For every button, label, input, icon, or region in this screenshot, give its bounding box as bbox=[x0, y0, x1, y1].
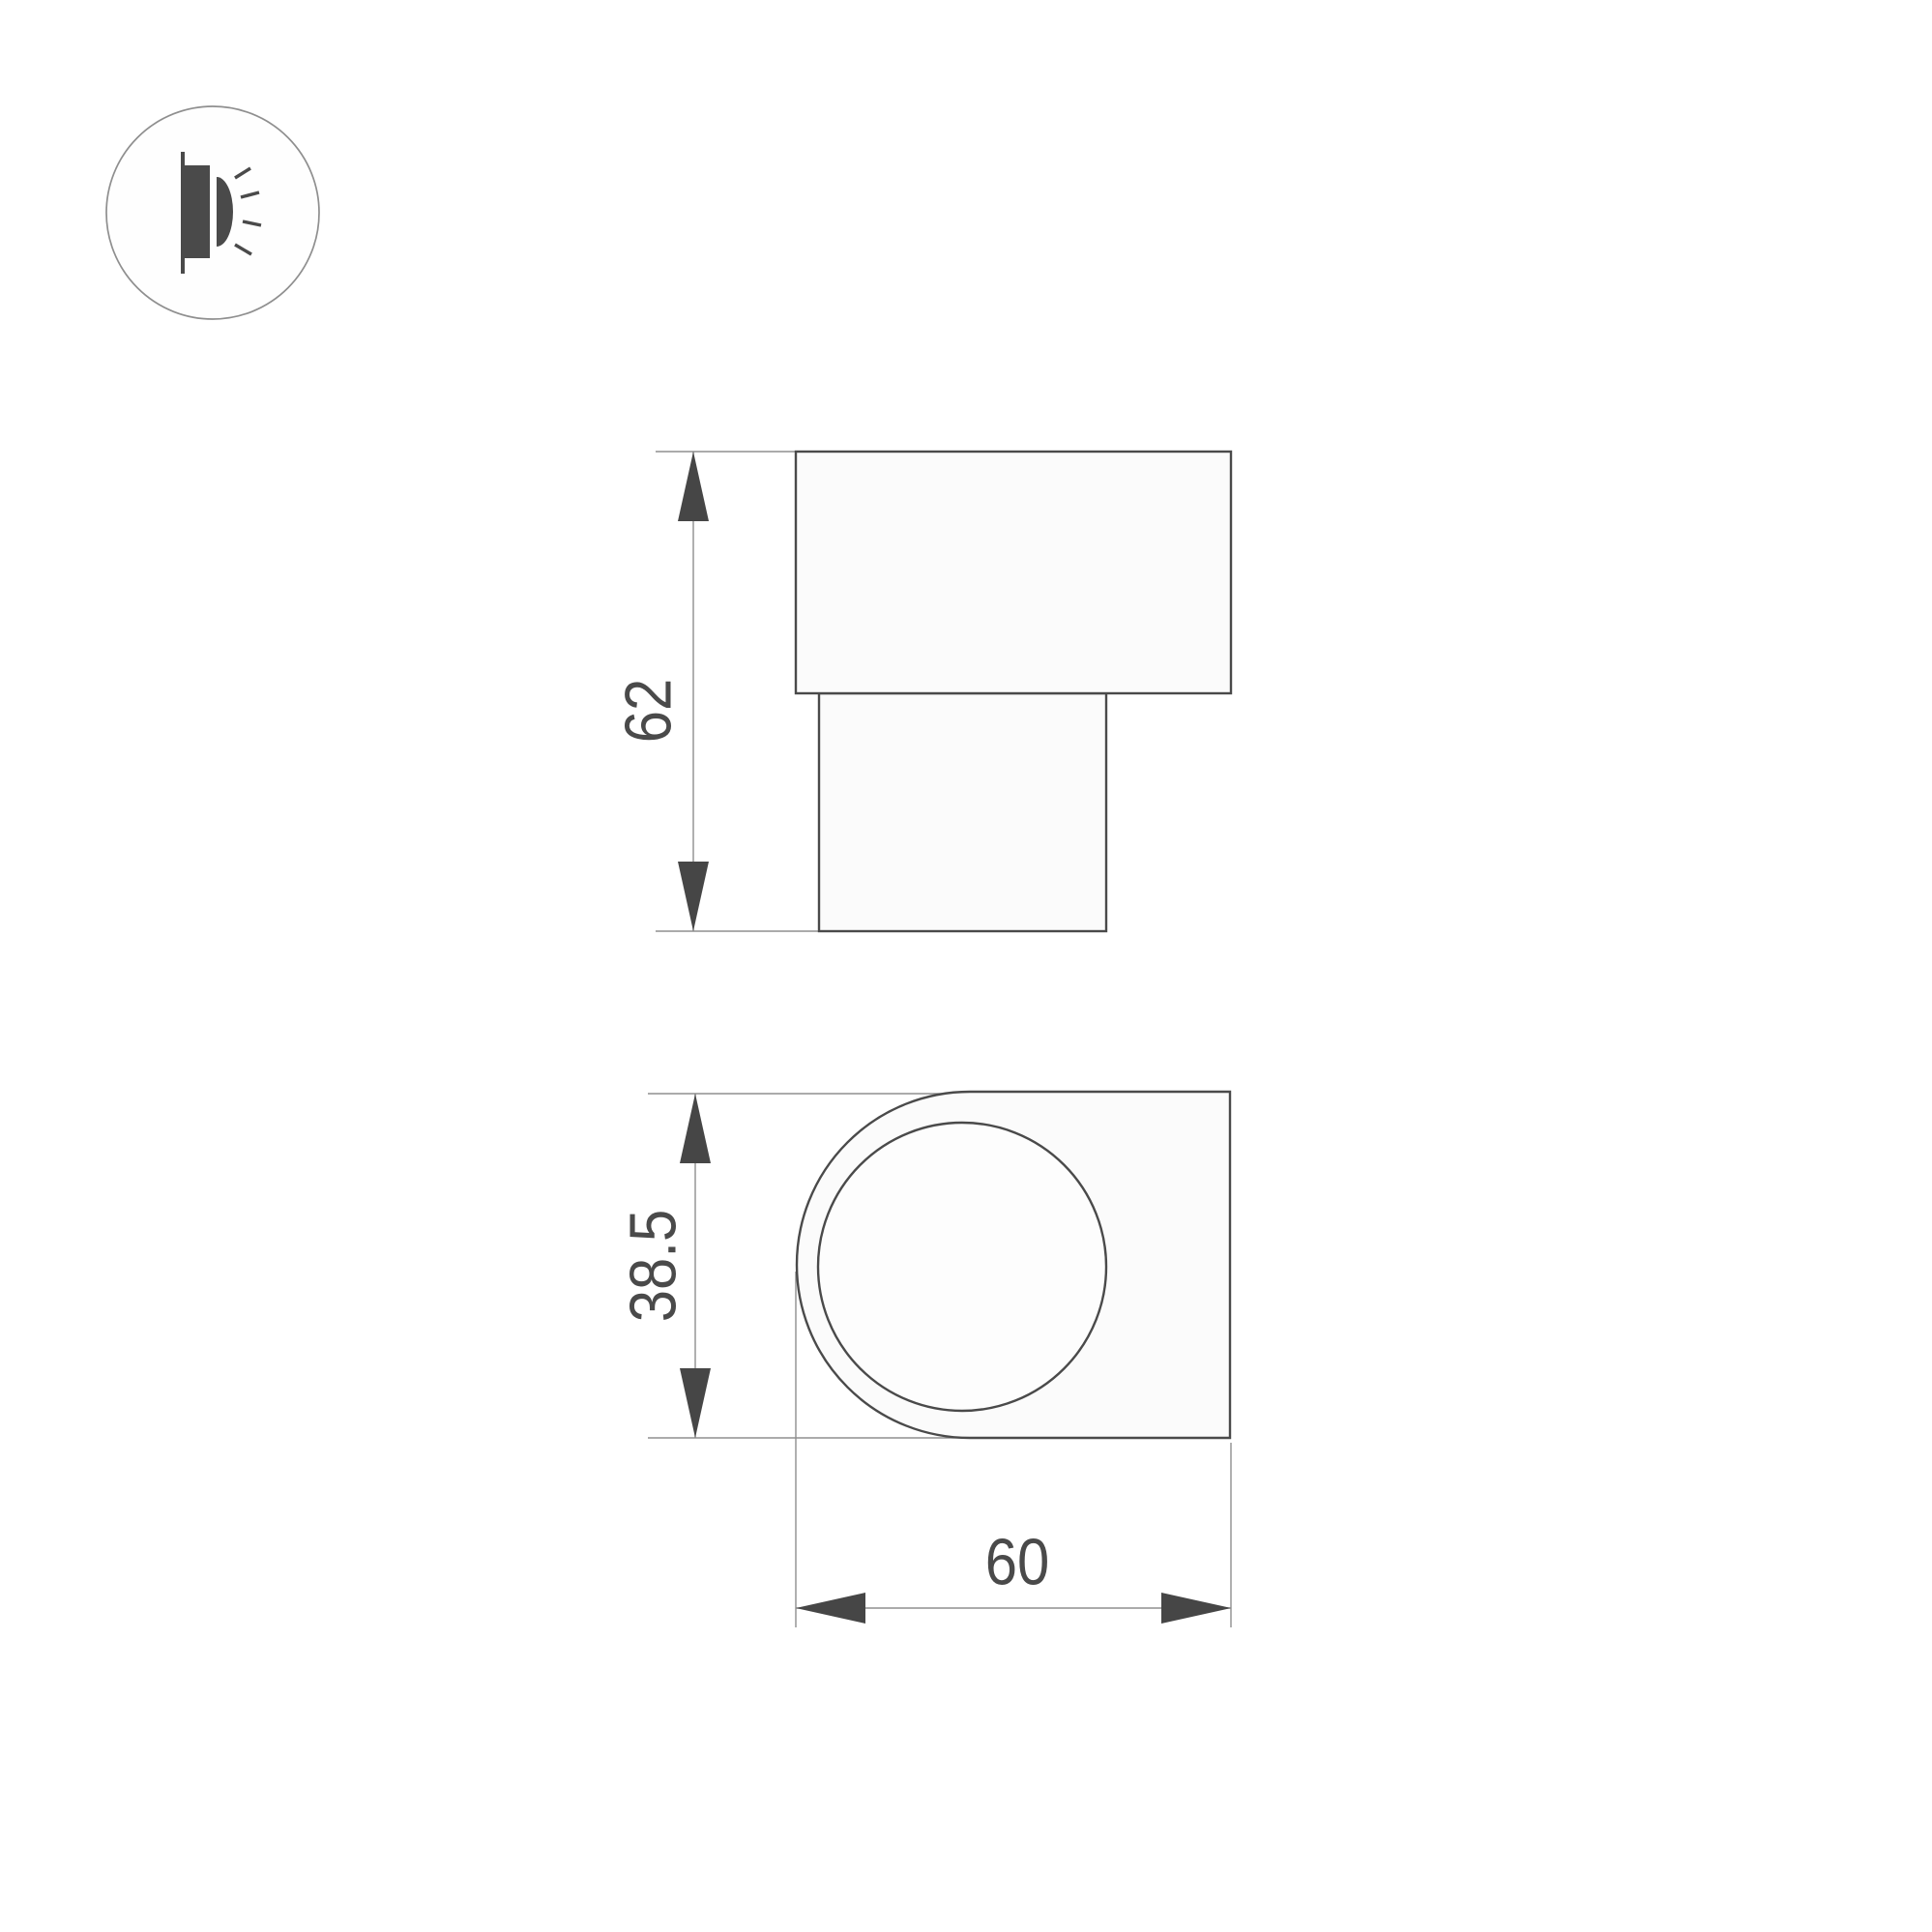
side-view-head bbox=[796, 452, 1231, 693]
front-view: 38.5 60 bbox=[616, 1092, 1231, 1627]
dim-value-62: 62 bbox=[611, 679, 685, 744]
wall-light-icon bbox=[106, 106, 319, 319]
arrow-left-icon bbox=[796, 1593, 865, 1624]
side-view: 62 bbox=[611, 452, 1231, 931]
icon-wall-line bbox=[181, 152, 185, 274]
arrow-down-icon bbox=[680, 1368, 711, 1438]
arrow-up-icon bbox=[678, 452, 709, 521]
technical-drawing: 62 38.5 60 bbox=[0, 0, 1932, 1932]
drawing-canvas: 62 38.5 60 bbox=[0, 0, 1932, 1932]
arrow-up-icon bbox=[680, 1094, 711, 1163]
dim-value-38-5: 38.5 bbox=[616, 1210, 689, 1322]
side-view-barrel bbox=[819, 693, 1106, 931]
icon-lamp-body bbox=[185, 165, 210, 258]
icon-circle bbox=[106, 106, 319, 319]
front-view-lens bbox=[818, 1123, 1106, 1411]
dim-value-60: 60 bbox=[985, 1525, 1050, 1598]
arrow-down-icon bbox=[678, 862, 709, 931]
arrow-right-icon bbox=[1161, 1593, 1231, 1624]
